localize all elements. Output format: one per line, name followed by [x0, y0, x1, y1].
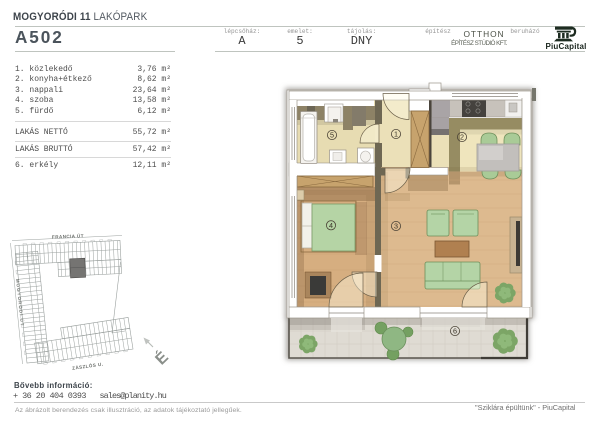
svg-text:4: 4 — [329, 221, 333, 230]
svg-text:6: 6 — [453, 327, 457, 336]
svg-text:2: 2 — [460, 133, 464, 142]
svg-text:FRANCIA ÚT: FRANCIA ÚT — [52, 232, 84, 239]
svg-text:3: 3 — [394, 222, 398, 231]
svg-text:ZÁSZLÓS U.: ZÁSZLÓS U. — [72, 360, 104, 371]
svg-text:É: É — [151, 347, 172, 368]
svg-text:1: 1 — [394, 130, 398, 139]
svg-text:5: 5 — [330, 131, 334, 140]
